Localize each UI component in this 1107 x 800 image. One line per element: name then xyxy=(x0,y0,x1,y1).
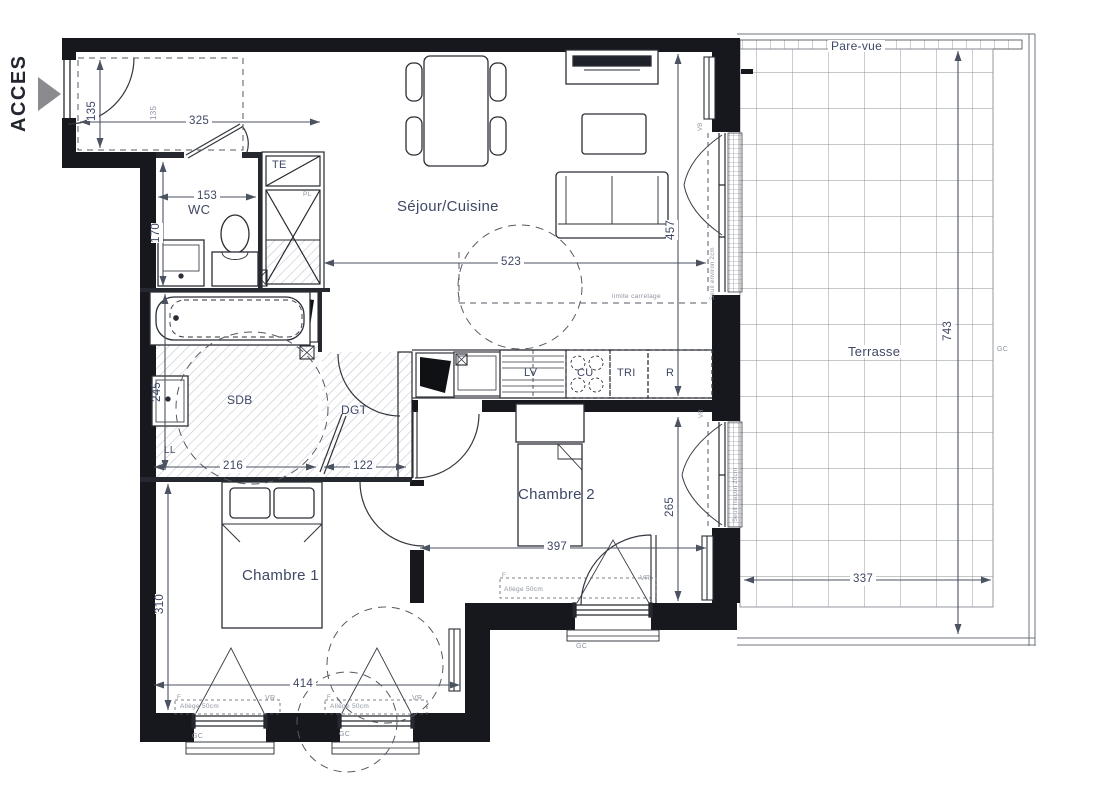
window3-vr-label: VR xyxy=(640,575,650,582)
dim-entry-width: 325 xyxy=(186,116,212,128)
window3-f-label: F xyxy=(502,573,506,579)
window2-vr-label: VR xyxy=(412,695,422,702)
dim-ghost-135: 135 xyxy=(150,106,158,120)
window1-allege-label: Allège 50cm xyxy=(180,704,219,711)
dim-chambre1-height: 310 xyxy=(155,594,167,614)
access-label: ACCES xyxy=(8,54,31,132)
dim-sejour-height: 457 xyxy=(666,220,678,240)
terrace-structure xyxy=(737,34,1035,646)
dim-sdb-width: 216 xyxy=(220,461,246,473)
floorplan-linework xyxy=(0,0,1107,800)
dim-dgt-width: 122 xyxy=(350,461,376,473)
limite-carrelage-label: limite carrelage xyxy=(612,294,661,301)
kitchen-lv-label: LV xyxy=(524,368,537,379)
window1-f-label: F xyxy=(177,695,181,701)
radiator-vb-label: VB xyxy=(698,122,704,131)
window3-allege-label: Allège 50cm xyxy=(504,587,543,594)
floorplan-page: { "plan": { "acces": "ACCES" }, "terrace… xyxy=(0,0,1107,800)
dim-chambre2-width: 397 xyxy=(544,542,570,554)
room-label-sdb: SDB xyxy=(227,394,253,406)
access-arrow-icon xyxy=(38,77,61,111)
window2-allege-label: Allège 50cm xyxy=(330,704,369,711)
room-label-wc: WC xyxy=(188,203,210,216)
seuil-environ-label: Seuil environ 2cm xyxy=(710,247,716,300)
terrace-gc-label: GC xyxy=(997,346,1008,353)
window3-gc-label: GC xyxy=(576,643,587,650)
pare-vue-label: Pare-vue xyxy=(828,40,885,52)
kitchen-cu-label: CU xyxy=(577,368,594,379)
closet-te-label: TE xyxy=(272,160,287,171)
window2-f-label: F xyxy=(327,695,331,701)
dim-terrace-width: 337 xyxy=(850,574,876,586)
dim-wc-width: 153 xyxy=(194,191,220,203)
dim-chambre2-height: 265 xyxy=(665,497,677,517)
seuil-macon-label: Seuil maçon 20cm xyxy=(733,468,739,522)
window1-vr-label: VR xyxy=(265,695,275,702)
dim-chambre1-width: 414 xyxy=(290,679,316,691)
door2-vr-label: VR xyxy=(699,409,705,418)
terrasse-label: Terrasse xyxy=(846,345,902,358)
room-label-sejour: Séjour/Cuisine xyxy=(397,199,499,214)
closet-pl-label: PL xyxy=(303,192,312,199)
kitchen-tri-label: TRI xyxy=(617,368,636,379)
dim-wc-height: 170 xyxy=(151,223,163,243)
window1-gc-label: GC xyxy=(192,733,203,740)
room-label-chambre2: Chambre 2 xyxy=(518,487,595,502)
room-label-chambre1: Chambre 1 xyxy=(242,568,319,583)
window2-gc-label: GC xyxy=(339,731,350,738)
room-label-dgt: DGT xyxy=(341,404,367,416)
kitchen-r-label: R xyxy=(666,368,674,379)
laundry-ll-label: LL xyxy=(164,446,176,456)
dim-terrace-height: 743 xyxy=(943,321,955,341)
dim-sejour-width: 523 xyxy=(498,257,524,269)
dim-entry-height: 135 xyxy=(87,101,99,121)
dim-sdb-height: 245 xyxy=(152,382,164,402)
